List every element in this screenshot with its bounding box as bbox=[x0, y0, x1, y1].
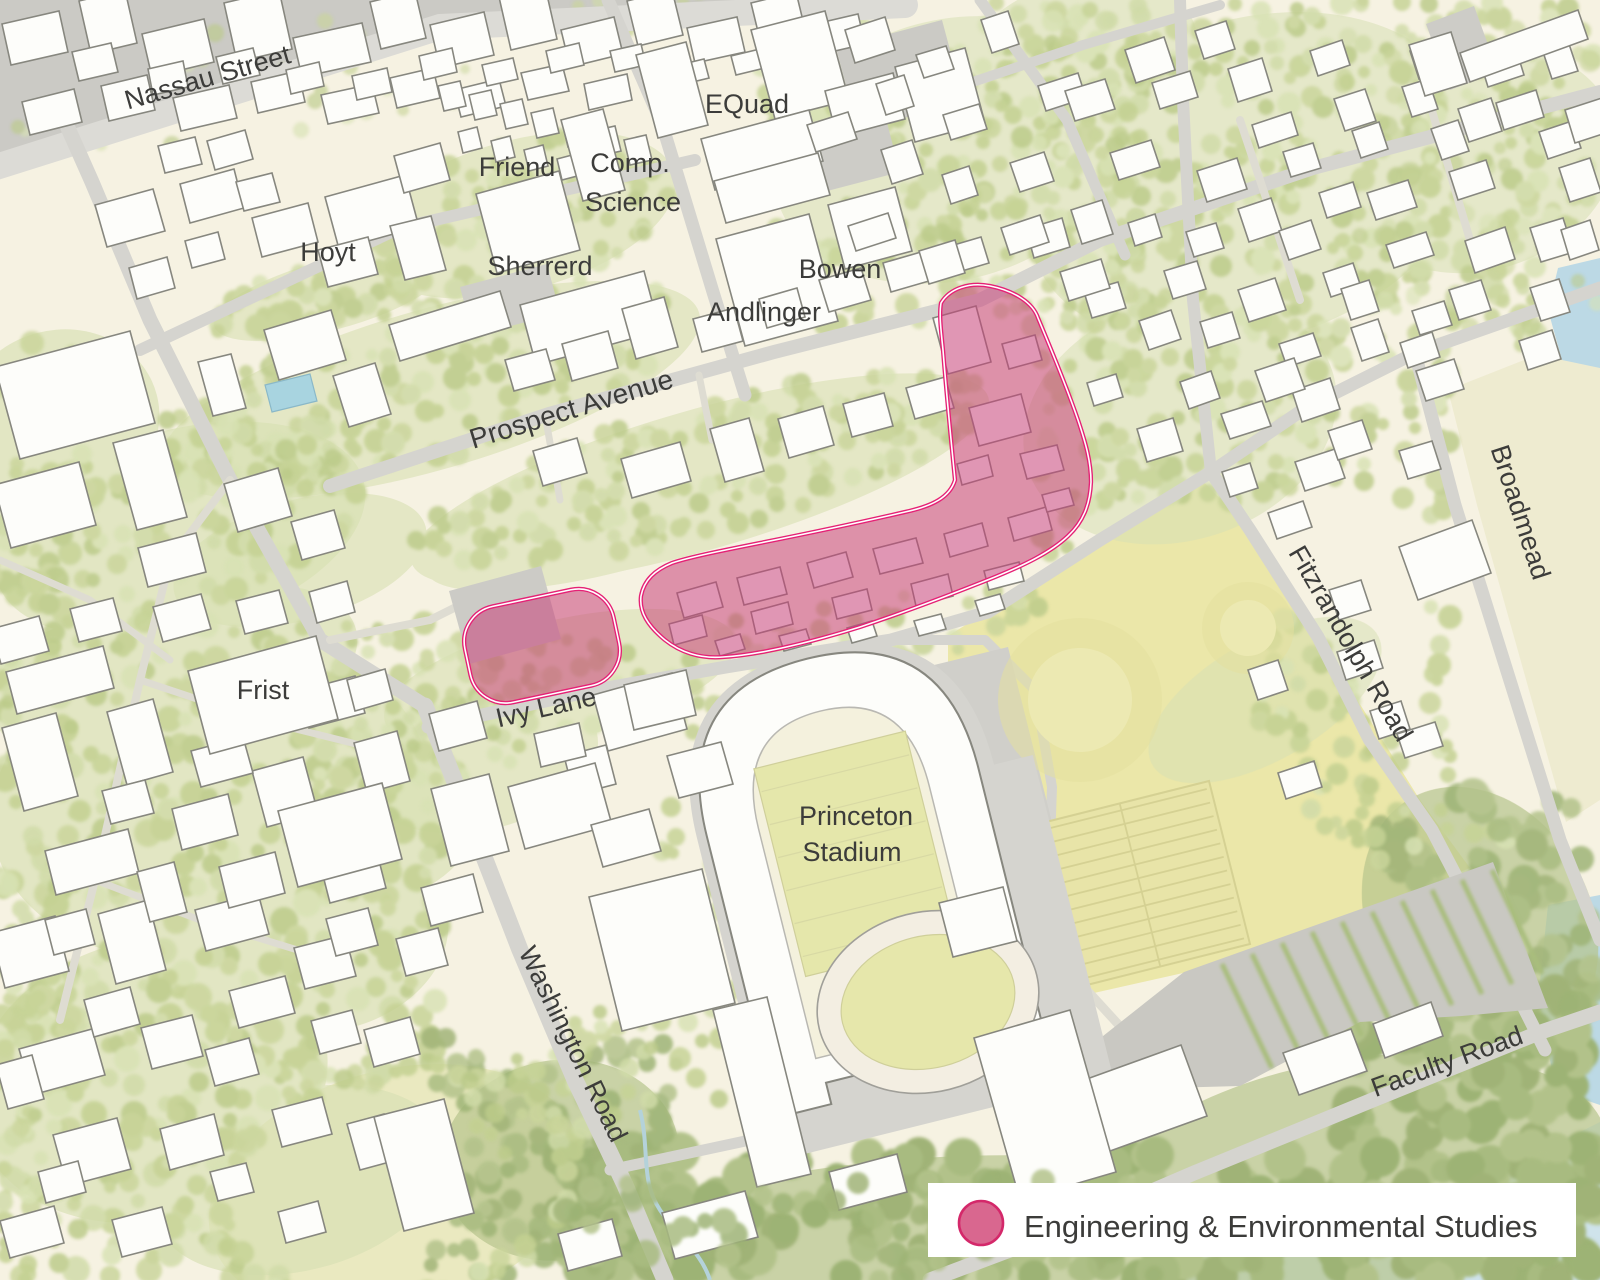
svg-text:Comp.: Comp. bbox=[590, 148, 670, 178]
svg-text:Science: Science bbox=[585, 187, 681, 217]
svg-text:Bowen: Bowen bbox=[799, 254, 882, 284]
svg-text:Engineering & Environmental St: Engineering & Environmental Studies bbox=[1024, 1209, 1538, 1244]
svg-text:Princeton: Princeton bbox=[799, 801, 913, 831]
svg-text:Sherrerd: Sherrerd bbox=[487, 251, 592, 281]
svg-text:EQuad: EQuad bbox=[705, 89, 789, 119]
svg-text:Frist: Frist bbox=[237, 675, 290, 705]
svg-text:Stadium: Stadium bbox=[802, 837, 901, 867]
svg-text:Friend: Friend bbox=[479, 152, 556, 182]
svg-text:Hoyt: Hoyt bbox=[300, 237, 356, 267]
svg-text:Andlinger: Andlinger bbox=[707, 297, 821, 327]
